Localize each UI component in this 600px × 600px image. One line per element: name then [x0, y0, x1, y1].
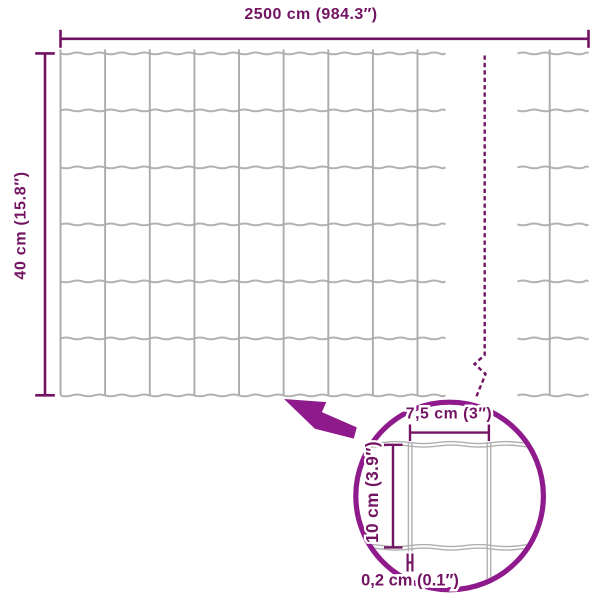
svg-text:7,5 cm (3″): 7,5 cm (3″) — [406, 405, 493, 422]
svg-text:2500 cm (984.3″): 2500 cm (984.3″) — [244, 6, 377, 23]
svg-text:0,2 cm (0.1″): 0,2 cm (0.1″) — [361, 572, 459, 590]
svg-text:40 cm (15.8″): 40 cm (15.8″) — [12, 171, 29, 279]
svg-text:10 cm (3.9″): 10 cm (3.9″) — [362, 441, 382, 543]
